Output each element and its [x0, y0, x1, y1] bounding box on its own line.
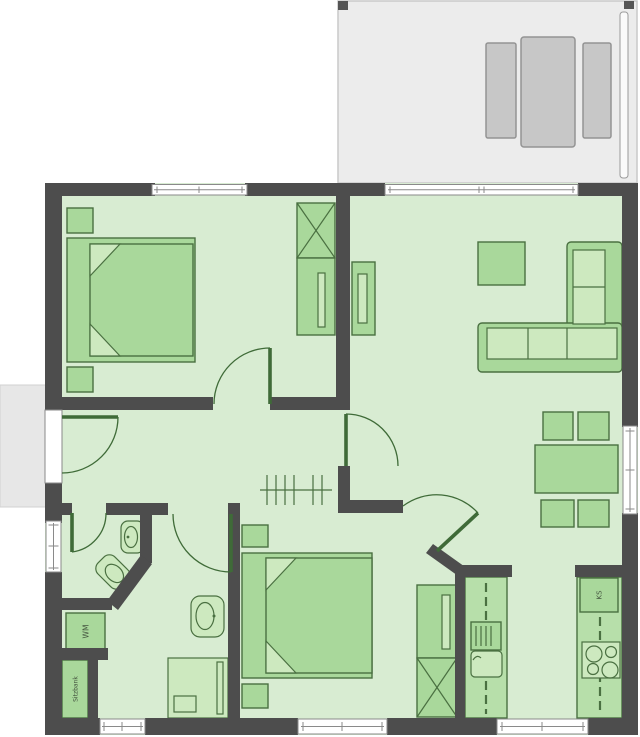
- terrace-lounge-icon: [486, 37, 611, 147]
- terrace: [338, 1, 637, 183]
- shower-icon: [168, 658, 228, 718]
- bench: Sitzbank: [62, 660, 88, 718]
- floor-plan-canvas: WM Sitzbank: [0, 0, 640, 737]
- tv-board-icon: [352, 262, 375, 335]
- fridge-label: KS: [596, 590, 604, 600]
- fridge: KS: [580, 578, 618, 612]
- nightstand-icon: [67, 367, 93, 392]
- double-bed-icon: [67, 238, 195, 362]
- terrace-railing: [620, 12, 628, 178]
- window-icon: [100, 719, 145, 734]
- window-icon: [298, 719, 387, 734]
- nightstand-icon: [242, 525, 268, 547]
- dining-table-icon: [535, 445, 618, 493]
- bench-label: Sitzbank: [73, 676, 80, 702]
- chair-icon: [541, 500, 574, 527]
- chair-icon: [578, 412, 609, 440]
- kitchen-sink-icon: [471, 622, 502, 677]
- window-icon: [497, 719, 588, 734]
- washing-machine: WM: [66, 613, 105, 650]
- washbasin-icon: [191, 596, 224, 637]
- double-bed-icon: [242, 553, 372, 678]
- nightstand-icon: [67, 208, 93, 233]
- nightstand-icon: [242, 684, 268, 708]
- coffee-table-icon: [478, 242, 525, 285]
- window-icon: [152, 185, 247, 196]
- chair-icon: [578, 500, 609, 527]
- terrace-door-window-icon: [385, 185, 578, 196]
- entrance-opening: [45, 410, 62, 483]
- washing-machine-label: WM: [82, 625, 91, 639]
- wardrobe-x-icon: [417, 585, 457, 717]
- window-icon: [46, 521, 61, 572]
- window-icon: [623, 426, 637, 514]
- chair-icon: [543, 412, 573, 440]
- terrace-post-icon: [338, 1, 348, 10]
- terrace-post-icon: [624, 1, 634, 9]
- floor-plan-page: WM Sitzbank: [0, 0, 640, 737]
- wardrobe-x-icon: [297, 203, 335, 335]
- stove-icon: [582, 642, 620, 678]
- entrance-porch: [0, 385, 46, 507]
